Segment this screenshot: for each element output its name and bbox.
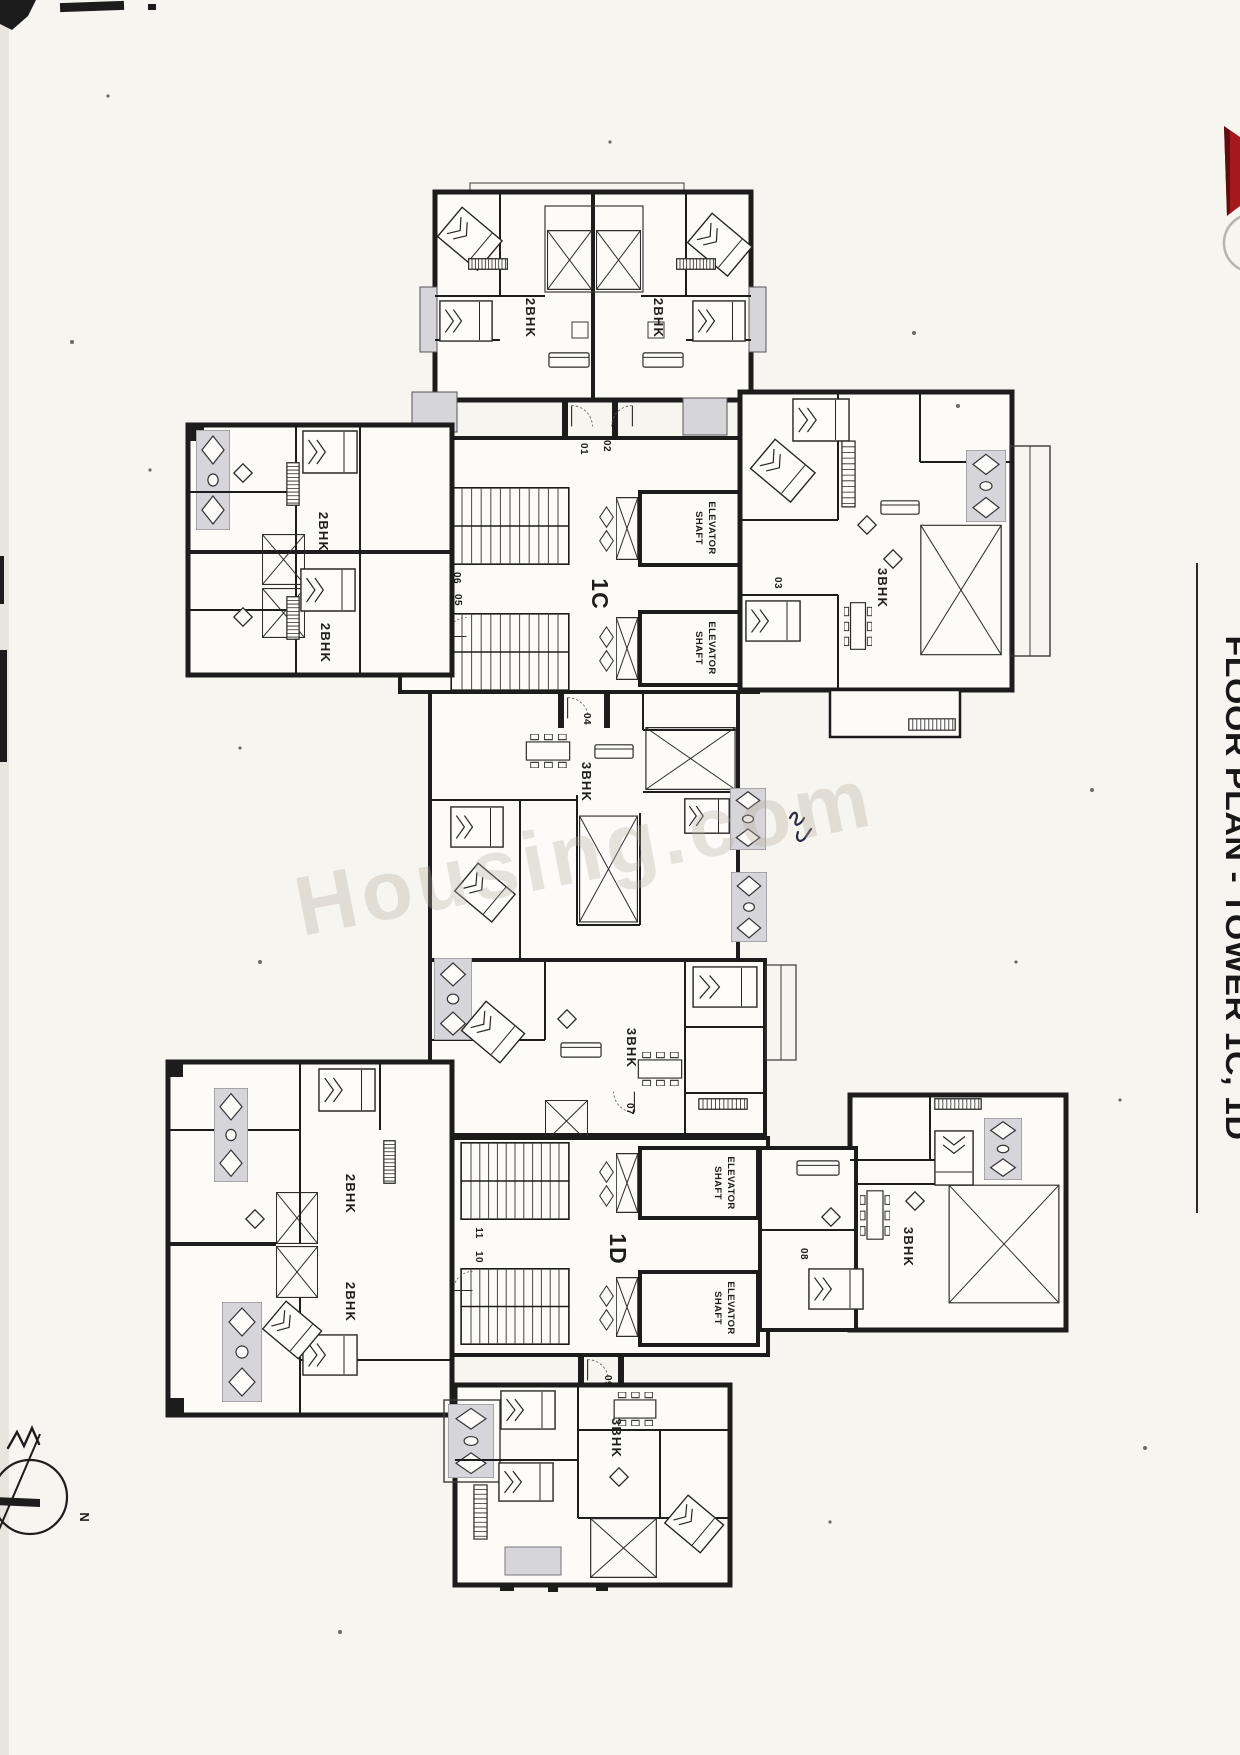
bed-icon <box>301 569 355 611</box>
core-label-1c: 1C <box>587 578 613 609</box>
page-title: FLOOR PLAN - TOWER 1C, 1D <box>1219 636 1240 1141</box>
side-balcony <box>749 287 766 352</box>
wardrobe-icon <box>842 441 855 507</box>
unit-number-08: 08 <box>798 1248 809 1260</box>
door-arc-icon <box>572 406 593 427</box>
unit-number-11: 11 <box>473 1227 484 1239</box>
middle-unit-07 <box>430 958 796 1142</box>
unit-type-06: 2BHK <box>316 512 331 552</box>
unit-number-01: 01 <box>578 443 589 455</box>
floorplan-drawing: 01 02 03 04 05 06 07 08 09 10 11 2BHK 2B… <box>0 0 1240 1755</box>
bed-icon <box>303 431 357 473</box>
wardrobe-icon <box>469 259 508 270</box>
unit-number-10: 10 <box>473 1251 484 1263</box>
kitchen-counter-icon <box>699 1099 747 1110</box>
balcony-lounge-icon <box>984 1118 1022 1180</box>
scan-blob <box>0 0 36 30</box>
right-upper-wing <box>740 392 1050 737</box>
north-label: N <box>77 1512 92 1521</box>
wardrobe-icon <box>935 1099 981 1110</box>
wardrobe-icon <box>909 719 955 730</box>
corner-hatch <box>168 1062 183 1077</box>
utility-gray <box>505 1547 561 1575</box>
scan-blob <box>0 650 7 762</box>
stairs-icon <box>451 614 569 690</box>
corridor-wall <box>578 1355 584 1385</box>
wardrobe-icon <box>474 1485 487 1539</box>
corner-hatch <box>168 1398 184 1414</box>
core-label-1d: 1D <box>605 1233 631 1264</box>
logo-circle-arc <box>1224 214 1240 272</box>
unit-type-01: 2BHK <box>523 298 538 338</box>
scanned-floorplan-page: 01 02 03 04 05 06 07 08 09 10 11 2BHK 2B… <box>0 0 1240 1755</box>
unit-type-11: 2BHK <box>343 1174 358 1214</box>
elevator-shaft-room <box>640 1148 758 1218</box>
scan-blob <box>148 4 156 10</box>
balcony-lounge-icon <box>222 1302 262 1402</box>
unit-number-09: 09 <box>602 1375 613 1387</box>
sofa-icon <box>561 1043 601 1057</box>
stairs-icon <box>461 1143 569 1219</box>
wing-outline <box>455 1385 730 1585</box>
left-edge-shadow <box>0 0 9 1755</box>
sofa-icon <box>797 1161 839 1175</box>
elevator-shaft-label: SHAFT <box>712 1166 723 1200</box>
elevator-shaft-label: ELEVATOR <box>706 501 717 554</box>
sofa-icon <box>595 745 633 758</box>
corridor-wall <box>558 692 564 728</box>
unit-number-02: 02 <box>601 440 612 452</box>
kitchen-counter-icon <box>287 463 299 506</box>
corridor-wall <box>618 1355 624 1385</box>
wardrobe-icon <box>677 259 716 270</box>
corridor-wall <box>612 400 618 438</box>
utility-balcony <box>683 398 727 435</box>
wing-outline <box>740 392 1012 690</box>
dining-table-icon <box>844 603 872 650</box>
dining-table-icon <box>526 734 569 768</box>
scan-tick <box>500 1585 514 1591</box>
compass-bar-icon <box>0 1496 40 1507</box>
balcony-lounge-icon <box>966 450 1006 522</box>
title-block: FLOOR PLAN - TOWER 1C, 1D <box>1197 563 1240 1213</box>
top-wing <box>412 183 766 438</box>
bed-icon <box>319 1069 375 1111</box>
bed-icon <box>499 1463 553 1501</box>
bed-icon <box>693 301 745 341</box>
unit-type-08: 3BHK <box>901 1227 916 1267</box>
unit-number-04: 04 <box>581 713 592 725</box>
bottom-wing <box>444 1360 730 1592</box>
elevator-shaft-label: SHAFT <box>712 1291 723 1325</box>
compass: N <box>0 1428 92 1560</box>
balcony-lounge-icon <box>214 1088 248 1182</box>
unit-number-03: 03 <box>772 577 783 589</box>
kitchen-counter-icon <box>287 597 299 640</box>
dining-table-icon <box>860 1191 890 1239</box>
balcony-lounge-icon <box>731 872 767 942</box>
dining-table-icon <box>638 1052 681 1086</box>
scan-tick <box>596 1585 608 1591</box>
bed-icon <box>746 601 800 641</box>
elevator-shaft-label: SHAFT <box>693 511 704 545</box>
unit-type-07: 3BHK <box>624 1028 639 1068</box>
bed-icon <box>935 1131 973 1185</box>
elevator-shaft-label: ELEVATOR <box>725 1281 736 1334</box>
bed-icon <box>501 1391 555 1429</box>
unit-type-05: 2BHK <box>318 623 333 663</box>
corridor-wall <box>562 400 568 438</box>
elevator-shaft-label: SHAFT <box>693 631 704 665</box>
unit-number-07: 07 <box>624 1103 635 1115</box>
logo-fragment <box>1224 126 1240 272</box>
scan-blob <box>0 556 4 604</box>
elevator-shaft-label: ELEVATOR <box>706 621 717 674</box>
unit-type-04: 3BHK <box>579 762 594 802</box>
unit-number-06: 06 <box>451 572 462 584</box>
sofa-icon <box>881 501 919 514</box>
logo-dark-edge <box>1224 126 1230 216</box>
side-balcony <box>420 287 437 352</box>
kitchen-counter-icon <box>384 1141 395 1184</box>
sofa-icon <box>643 353 683 367</box>
elevator-shaft-label: ELEVATOR <box>725 1156 736 1209</box>
stairs-icon <box>451 488 569 564</box>
unit-type-09: 3BHK <box>609 1418 624 1458</box>
scan-blob <box>60 1 124 12</box>
unit-number-05: 05 <box>452 594 463 606</box>
lower-right-wing <box>760 1095 1066 1330</box>
scan-tick <box>548 1587 558 1592</box>
unit-type-02: 2BHK <box>651 298 666 338</box>
balcony-lounge-icon <box>448 1404 494 1478</box>
sofa-icon <box>549 353 589 367</box>
unit-type-10: 2BHK <box>343 1282 358 1322</box>
corridor-wall <box>604 692 610 728</box>
bed-icon <box>809 1269 863 1309</box>
lower-left-wing <box>168 1062 452 1415</box>
stairs-icon <box>461 1269 569 1344</box>
bed-icon <box>693 967 757 1007</box>
bed-icon <box>793 399 849 441</box>
unit-type-03: 3BHK <box>875 568 890 608</box>
compass-circle-icon <box>0 1460 67 1534</box>
elevator-shaft-room <box>640 1272 758 1345</box>
balcony-lounge-icon <box>196 430 230 530</box>
core-1c <box>400 438 782 692</box>
bed-icon <box>440 301 492 341</box>
